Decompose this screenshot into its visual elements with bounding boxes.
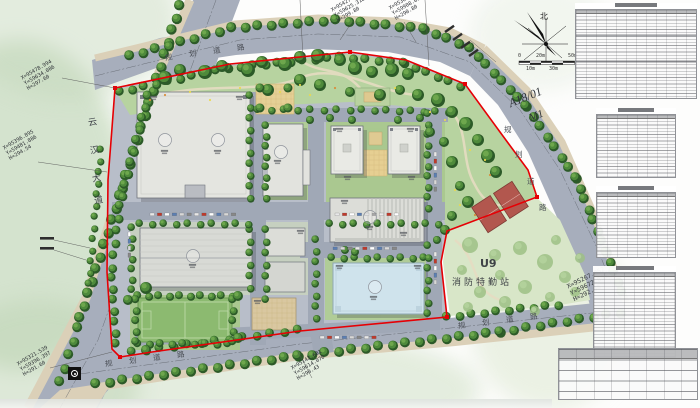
data-table-3 [596, 186, 676, 258]
right-road-name-char2: 划 [515, 149, 523, 160]
data-table-4 [593, 266, 676, 358]
u9-parcel-name: 消防特勤站 [452, 275, 512, 288]
data-table-2 [596, 108, 676, 178]
top-road-name-char2: 划 [188, 47, 197, 59]
scale-tick-0: 0 [518, 53, 521, 59]
survey-monument-icon [68, 367, 81, 380]
right-road-name-char1: 规 [504, 124, 512, 135]
top-road-name-char3: 道 [212, 44, 221, 56]
u9-parcel-code: U9 [480, 257, 497, 270]
bottom-road-name-right-char3: 道 [505, 314, 514, 326]
bottom-road-name-left-char1: 规 [104, 358, 113, 370]
scale-tick-20m: 20m [536, 53, 545, 59]
north-label: 北 [540, 11, 548, 22]
bottom-road-name-left-char4: 路 [176, 349, 185, 361]
site-plan-canvas: 北 0 20m 50m 10m 30m A18/01 M1 云 汉 大 道 规 … [0, 0, 700, 408]
right-road-name-char3: 道 [527, 176, 535, 187]
top-road-name-char4: 路 [236, 41, 245, 53]
bottom-road-name-left-char2: 划 [128, 355, 137, 367]
bottom-road-name-left-char3: 道 [152, 352, 161, 364]
scale-bar-graphic [519, 61, 575, 65]
drawing-edge-band [0, 399, 552, 408]
top-road-name-char1: 规 [164, 51, 173, 63]
bottom-road-name-right-char2: 划 [481, 317, 490, 329]
data-table-1 [575, 3, 697, 99]
legend-table [558, 348, 698, 400]
right-road-name-char4: 路 [539, 202, 547, 213]
scale-tick-10m: 10m [526, 66, 535, 72]
scale-tick-30m: 30m [549, 66, 558, 72]
bottom-road-name-right-char1: 规 [457, 320, 466, 332]
bottom-road-name-right-char4: 路 [529, 311, 538, 323]
